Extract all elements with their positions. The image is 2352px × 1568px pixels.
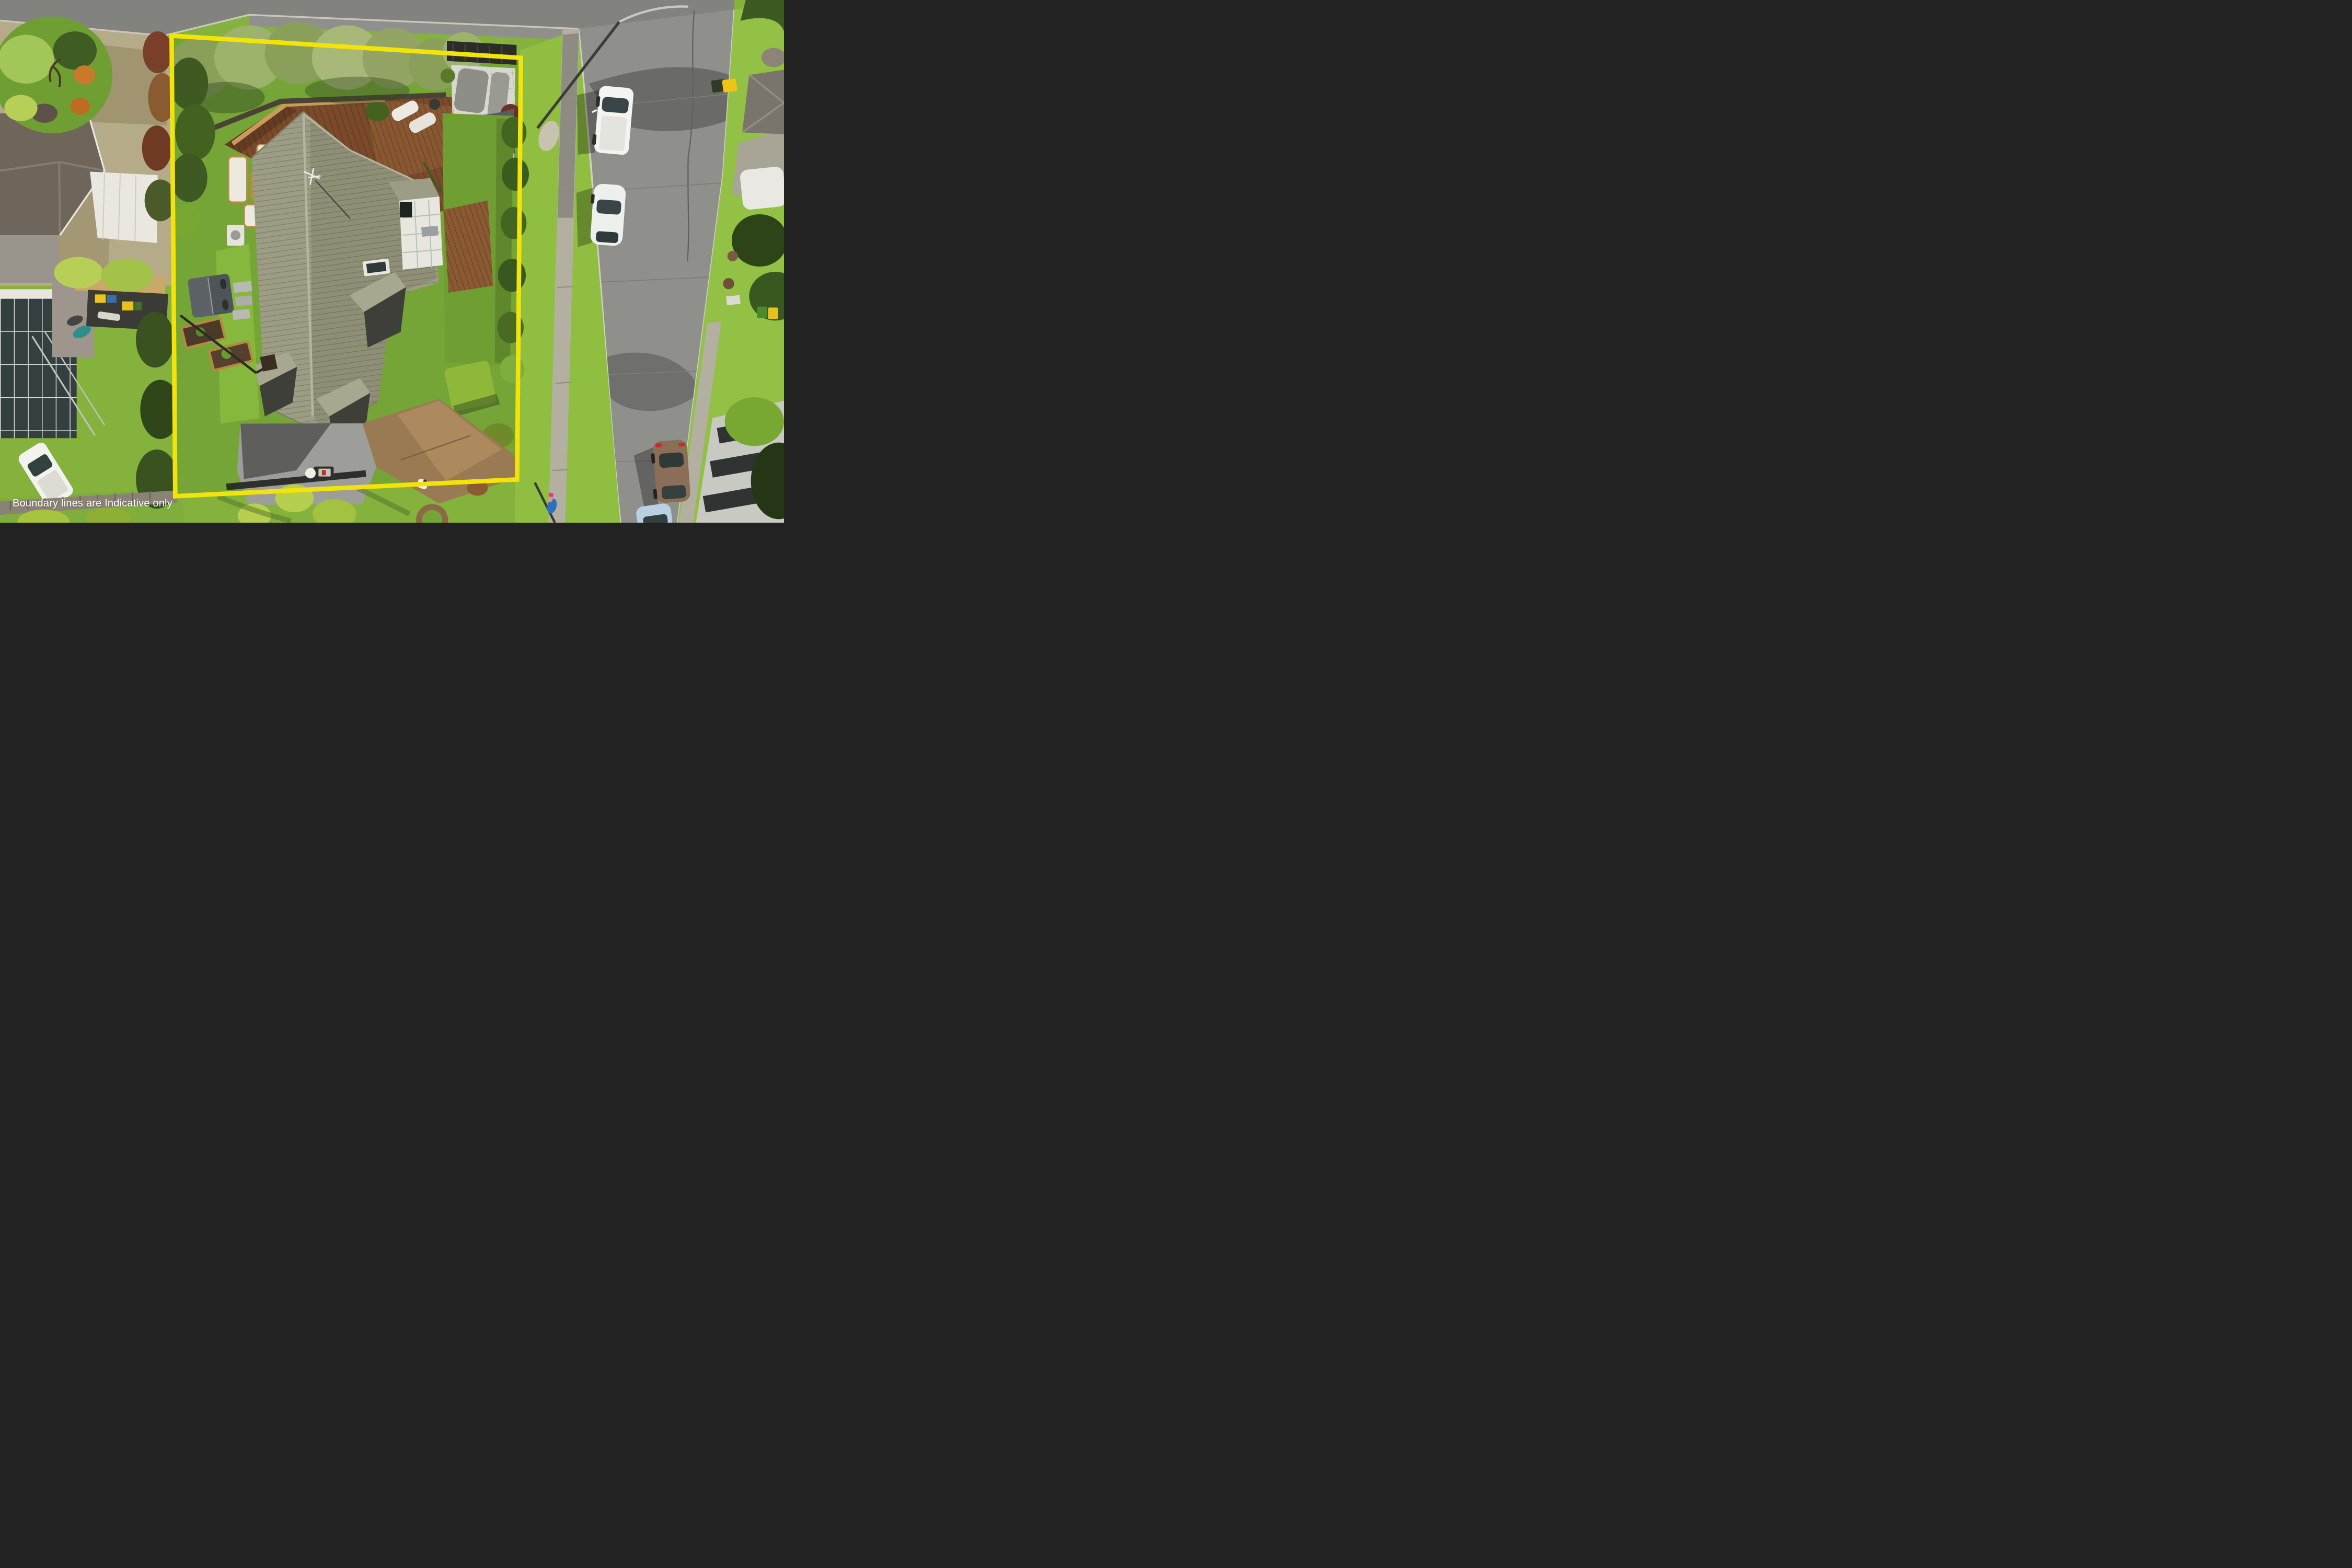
palm-canopy-2 (101, 259, 153, 292)
hot-tub (188, 273, 235, 318)
sedan-rear-window (659, 452, 684, 468)
stepping-stone-2 (235, 295, 252, 306)
apartment-tree-bright (725, 397, 784, 446)
east-bush-2 (502, 158, 529, 191)
hatchback-windshield (596, 199, 621, 215)
east-bush-3 (501, 207, 526, 239)
white-hatchback (573, 182, 627, 250)
letterbox (305, 467, 333, 479)
west-bush-bright (172, 204, 200, 235)
bin-lid-yellow (722, 78, 737, 93)
deck-hedge-pocket (365, 102, 389, 121)
east-bush-bright (500, 355, 525, 383)
outdoor-sofa (228, 157, 247, 202)
van-windshield (602, 97, 629, 114)
green-bin (757, 307, 767, 318)
palm-canopy-1 (54, 257, 102, 289)
sedan-windshield (661, 485, 686, 500)
white-van (572, 84, 634, 159)
olive-row-shadow-2 (305, 77, 409, 105)
east-bush-4 (498, 259, 526, 292)
courtyard-bench (421, 226, 439, 237)
boundary-disclaimer-text: Boundary lines are Indicative only (13, 498, 172, 510)
parasol-base (230, 230, 240, 240)
covered-sofa-gray (453, 67, 489, 114)
island-orange-flowers-2 (71, 98, 90, 114)
island-dark-shrub (53, 31, 97, 70)
courtyard-doorway (400, 202, 412, 217)
letterbox-paper-tube (305, 468, 316, 478)
carport-yellow-bin-2 (122, 302, 133, 310)
van-roof (599, 116, 627, 152)
manhole-cover-2 (723, 278, 734, 289)
island-orange-flowers-1 (74, 65, 95, 85)
recycling-bin-at-kerb (711, 78, 737, 93)
carport-green-bin (134, 302, 142, 310)
sedan-taillight-right (678, 442, 685, 446)
carport-blue-bin (107, 295, 117, 303)
compost-box (260, 354, 278, 372)
potted-plant (441, 68, 455, 83)
hatchback-rear-window (596, 231, 619, 244)
west-hedge-1 (170, 57, 208, 110)
lounger-side-table (429, 99, 440, 110)
red-shrub-3 (142, 125, 172, 171)
west-hedge-2 (175, 105, 215, 160)
east-deck-walkway (443, 200, 493, 293)
aerial-photo-stage: Boundary lines are Indicative only (0, 0, 784, 523)
tall-tree-1 (136, 312, 174, 368)
yellow-bin (768, 307, 778, 319)
aerial-scene (0, 0, 784, 523)
hatchback-wheel (591, 194, 595, 204)
letterbox-red-sticker (322, 470, 326, 475)
white-caravan (740, 166, 784, 211)
sedan-taillight-left (655, 443, 662, 447)
red-shrub-1 (143, 31, 172, 73)
utility-box (726, 295, 741, 305)
stepping-stone-3 (232, 309, 250, 320)
sedan-wheel-front (651, 453, 655, 464)
manhole-cover-1 (728, 251, 738, 261)
carport-yellow-bin-1 (95, 294, 106, 303)
west-hedge-3 (171, 153, 207, 202)
sedan-wheel-rear (653, 489, 658, 499)
stepping-stone-1 (233, 281, 252, 293)
east-bush-1 (501, 117, 526, 148)
pedestrian-head (548, 497, 552, 502)
island-bright-shrub (0, 35, 54, 84)
island-fern (4, 95, 37, 121)
neighbor-flat-roof (0, 235, 59, 283)
